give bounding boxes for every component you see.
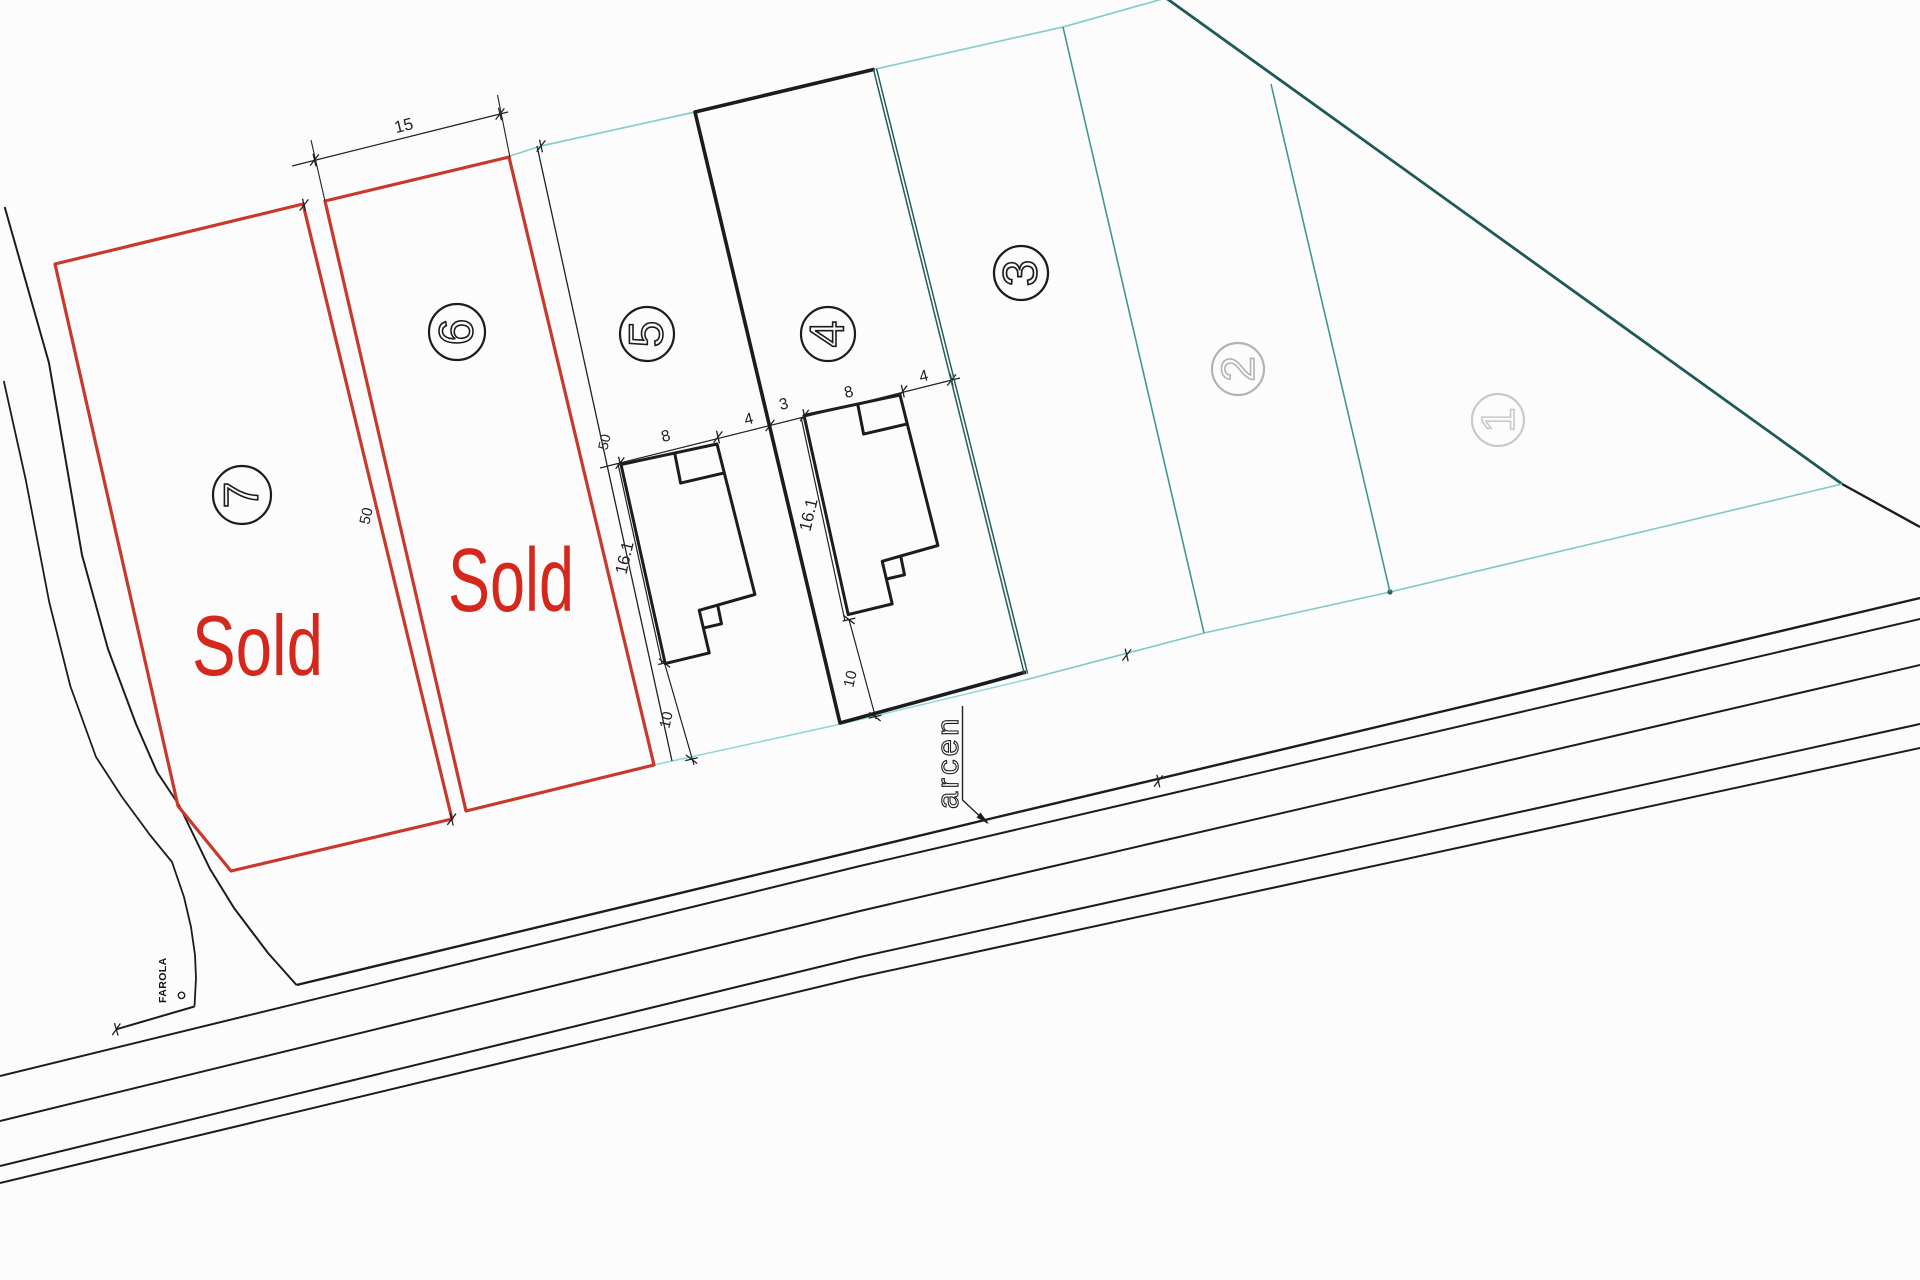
svg-text:Sold: Sold — [448, 531, 574, 631]
svg-text:3: 3 — [995, 260, 1048, 287]
svg-text:7: 7 — [216, 482, 269, 509]
svg-text:6: 6 — [431, 319, 484, 346]
svg-text:4: 4 — [802, 321, 855, 348]
svg-text:1: 1 — [1472, 407, 1524, 433]
svg-text:Sold: Sold — [192, 599, 323, 694]
svg-text:2: 2 — [1212, 356, 1264, 382]
svg-text:FAROLA: FAROLA — [157, 957, 169, 1003]
svg-text:5: 5 — [621, 321, 674, 348]
svg-text:arcen: arcen — [930, 715, 965, 809]
